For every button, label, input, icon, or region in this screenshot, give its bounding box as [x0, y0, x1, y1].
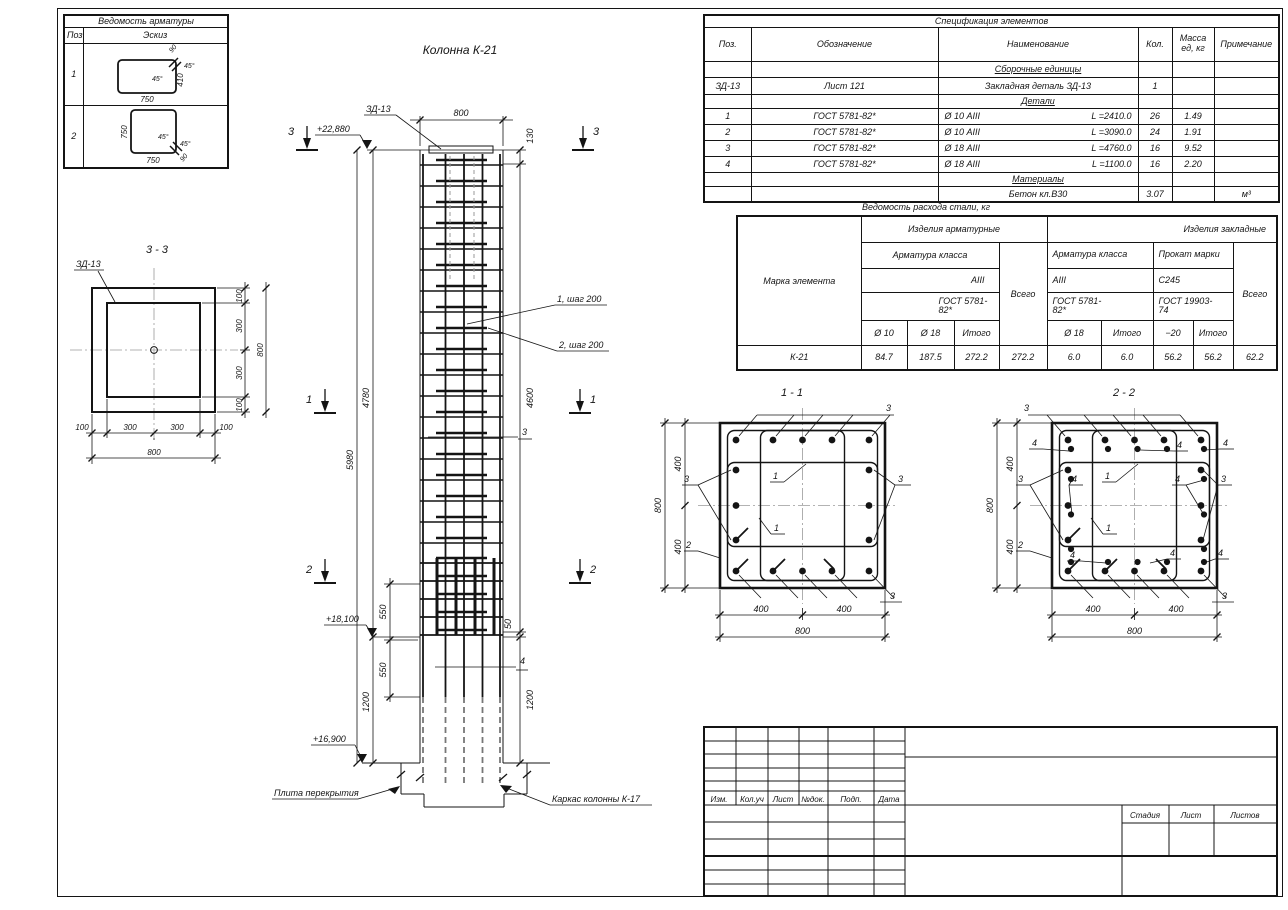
spec-cell: ЗД-13	[704, 77, 751, 94]
spec-cell: 2.20	[1172, 156, 1214, 172]
svg-text:2: 2	[589, 564, 596, 576]
steel-mark-header: Марка элемента	[737, 216, 861, 345]
col-koluch: Кол.уч	[740, 795, 764, 804]
spec-cell: Бетон кл.В30	[938, 186, 1138, 202]
zd13-label: ЗД-13	[364, 104, 441, 149]
col-izm: Изм.	[710, 795, 727, 804]
svg-text:400: 400	[1085, 604, 1100, 614]
title-block: Изм. Кол.уч Лист №док. Подп. Дата Стадия…	[703, 726, 1279, 898]
svg-text:1200: 1200	[361, 692, 371, 712]
sketch-dim-width: 750	[140, 95, 154, 103]
steel-value: 272.2	[999, 345, 1047, 370]
label-1-lower: 1	[1091, 518, 1117, 534]
label-3-left: 3	[1016, 470, 1063, 540]
svg-text:ЗД-13: ЗД-13	[366, 104, 391, 114]
tie-sketch-2: 750 750 45° 45° 90	[84, 106, 227, 165]
label-3-left: 3	[682, 470, 731, 540]
rebar-list-table: Ведомость арматуры Поз. Эскиз 1 750 410 …	[63, 14, 229, 169]
spec-header-designation: Обозначение	[751, 27, 938, 61]
svg-text:5980: 5980	[345, 450, 355, 470]
svg-text:3: 3	[1018, 474, 1023, 484]
tie-sketch-1: 750 410 45° 45° 90	[84, 44, 227, 103]
section-title: 3 - 3	[146, 244, 169, 256]
dim-right-chain: 130 4600 50 1200	[503, 128, 535, 766]
spec-cell: 26	[1138, 108, 1172, 124]
spec-cell: 1.91	[1172, 124, 1214, 140]
svg-text:550: 550	[378, 604, 388, 619]
svg-text:3: 3	[1024, 403, 1029, 413]
spec-cell: Ø 18 АIIIL =4760.0	[938, 140, 1138, 156]
svg-text:800: 800	[256, 343, 265, 357]
svg-text:1: 1	[774, 523, 779, 533]
pos4-leader: 4	[435, 656, 528, 670]
label-2: 2	[684, 540, 720, 558]
steel-group-embed: Изделия закладные	[1047, 216, 1277, 242]
sketch-angle: 45°	[152, 75, 163, 83]
dim-top-800: 800	[410, 108, 513, 146]
spec-length: L =3090.0	[1091, 127, 1131, 137]
steel-consumption-table: Марка элемента Изделия арматурные Издели…	[736, 215, 1278, 371]
section-flag-2-left: 2	[305, 559, 336, 583]
svg-text:3: 3	[1222, 591, 1227, 601]
steel-gost: ГОСТ 5781-82*	[1047, 292, 1153, 320]
svg-text:1200: 1200	[525, 690, 535, 710]
col-stadia: Стадия	[1130, 811, 1161, 820]
spec-cell: ГОСТ 5781-82*	[751, 108, 938, 124]
dim-left-4780-1200: 4780 1200	[361, 147, 377, 767]
steel-value: 56.2	[1193, 345, 1233, 370]
steel-roll-mark: Прокат марки	[1153, 242, 1233, 268]
spec-header-name: Наименование	[938, 27, 1138, 61]
spec-cell: 24	[1138, 124, 1172, 140]
col-ndok: №док.	[801, 795, 825, 804]
rebar-row-sketch: 750 750 45° 45° 90	[83, 105, 228, 168]
steel-col-header: Ø 18	[907, 320, 954, 345]
spec-cell: 16	[1138, 140, 1172, 156]
sketch-dim-height: 750	[120, 124, 129, 138]
svg-text:2: 2	[1017, 540, 1023, 550]
svg-text:400: 400	[836, 604, 851, 614]
svg-text:1: 1	[1106, 523, 1111, 533]
steel-value: 62.2	[1233, 345, 1277, 370]
spec-bar: Ø 18 АIII	[945, 143, 981, 153]
steel-group-rebar: Изделия арматурные	[861, 216, 1047, 242]
spec-cell: 3	[704, 140, 751, 156]
zd13-label: ЗД-13	[74, 259, 115, 302]
svg-text:3: 3	[288, 126, 295, 138]
svg-text:800: 800	[985, 498, 995, 513]
dim-left-550: 550 550	[378, 578, 420, 702]
sketch-dim-height: 410	[176, 72, 185, 86]
svg-text:2: 2	[685, 540, 691, 550]
rebar-list-header-sketch: Эскиз	[83, 27, 228, 43]
rebar-list-header-pos: Поз.	[64, 27, 83, 43]
label-1-upper: 1	[770, 464, 806, 482]
svg-text:800: 800	[795, 626, 810, 636]
svg-text:4: 4	[1175, 474, 1180, 484]
steel-class-a3: АIII	[1047, 268, 1153, 292]
spec-cell: 2	[704, 124, 751, 140]
svg-text:3: 3	[593, 126, 600, 138]
label-1-lower: 1	[759, 518, 785, 534]
svg-text:800: 800	[147, 448, 161, 457]
spec-header-qty: Кол.	[1138, 27, 1172, 61]
spec-cell: 9.52	[1172, 140, 1214, 156]
spec-cell: 16	[1138, 156, 1172, 172]
svg-text:+16,900: +16,900	[313, 734, 346, 744]
spec-bar: Ø 18 АIII	[945, 159, 981, 169]
svg-text:800: 800	[453, 108, 468, 118]
steel-value: 56.2	[1153, 345, 1193, 370]
svg-text:100: 100	[235, 289, 244, 303]
svg-text:50: 50	[503, 619, 513, 629]
svg-text:550: 550	[378, 662, 388, 677]
column-elevation-drawing: Колонна К-21 800 ЗД-13 +22,880 +18,100	[260, 30, 670, 845]
steel-value: К-21	[737, 345, 861, 370]
steel-total1-header: Всего	[999, 242, 1047, 345]
sketch-hook-len: 90	[168, 44, 178, 54]
label-1-upper: 1	[1102, 464, 1138, 482]
spec-header-note: Примечание	[1214, 27, 1279, 61]
section-2-2-drawing: 2 - 2 3 4 4 4 3 4	[968, 382, 1288, 660]
col-podp: Подп.	[840, 795, 861, 804]
svg-text:800: 800	[653, 498, 663, 513]
sketch-dim-width: 750	[146, 156, 160, 165]
svg-text:800: 800	[1127, 626, 1142, 636]
stirrup-grid	[421, 160, 503, 635]
steel-embed-class: Арматура класса	[1047, 242, 1153, 268]
svg-text:4: 4	[1177, 440, 1182, 450]
svg-text:+18,100: +18,100	[326, 614, 359, 624]
svg-text:100: 100	[219, 423, 233, 432]
section-3-3-drawing: 3 - 3 ЗД-13 100 300 300 100 800	[58, 238, 290, 483]
spec-cell: м³	[1214, 186, 1279, 202]
section-1-1-drawing: 1 - 1 3 3 3 1 1	[640, 382, 970, 660]
svg-text:2: 2	[305, 564, 312, 576]
col-sheets: Листов	[1229, 811, 1259, 820]
section-flag-3-right: 3	[572, 126, 600, 150]
svg-text:4: 4	[1170, 548, 1175, 558]
spec-cell: Ø 10 АIIIL =2410.0	[938, 108, 1138, 124]
steel-col-header: Итого	[1101, 320, 1153, 345]
svg-text:4: 4	[1032, 438, 1037, 448]
label-4-left: 4	[1069, 474, 1083, 515]
dim-left-5980: 5980	[345, 147, 361, 767]
spec-group-details: Детали	[938, 94, 1138, 108]
spec-cell: 4	[704, 156, 751, 172]
steel-col-header: Итого	[954, 320, 999, 345]
steel-gost: ГОСТ 5781-82*	[861, 292, 999, 320]
section-title: 1 - 1	[781, 387, 803, 399]
svg-text:4780: 4780	[361, 388, 371, 408]
section-flag-2-right: 2	[569, 559, 596, 583]
spec-cell: 3.07	[1138, 186, 1172, 202]
spec-group-materials: Материалы	[938, 172, 1138, 186]
spec-bar: Ø 10 АIII	[945, 127, 981, 137]
svg-text:3: 3	[898, 474, 903, 484]
svg-text:1: 1	[773, 471, 778, 481]
spec-header-mass: Масса ед, кг	[1172, 27, 1214, 61]
svg-text:300: 300	[170, 423, 184, 432]
specification-table: Спецификация элементов Поз. Обозначение …	[703, 14, 1280, 203]
svg-text:+22,880: +22,880	[317, 124, 350, 134]
steel-c245: С245	[1153, 268, 1233, 292]
steel-value: 272.2	[954, 345, 999, 370]
sketch-angle: 45°	[180, 140, 191, 148]
steel-value: 187.5	[907, 345, 954, 370]
svg-text:3: 3	[886, 403, 891, 413]
svg-text:400: 400	[1005, 456, 1015, 471]
drawing-sheet: { "rebar_list": { "title": "Ведомость ар…	[0, 0, 1288, 910]
elevation-mark-top: +22,880	[315, 124, 372, 149]
svg-text:4: 4	[1218, 548, 1223, 558]
elevation-mark-bottom: +16,900	[311, 734, 367, 763]
col-list: Лист	[772, 795, 794, 804]
spec-title: Спецификация элементов	[704, 15, 1279, 27]
svg-text:4: 4	[1072, 474, 1077, 484]
sketch-angle: 45°	[184, 62, 195, 70]
section-flag-1-left: 1	[306, 389, 336, 413]
spec-cell: ГОСТ 5781-82*	[751, 140, 938, 156]
spec-cell: Ø 10 АIIIL =3090.0	[938, 124, 1138, 140]
svg-text:130: 130	[525, 128, 535, 143]
spec-cell: 1	[1138, 77, 1172, 94]
svg-text:400: 400	[673, 539, 683, 554]
spec-group-assembly: Сборочные единицы	[938, 61, 1138, 77]
svg-text:Каркас колонны К-17: Каркас колонны К-17	[552, 794, 641, 804]
steel-value: 84.7	[861, 345, 907, 370]
svg-text:300: 300	[235, 319, 244, 333]
steel-rebar-class: Арматура класса	[861, 242, 999, 268]
svg-text:400: 400	[673, 456, 683, 471]
section-flag-3-left: 3	[288, 126, 318, 150]
label-2: 2	[1016, 540, 1052, 558]
svg-text:1: 1	[590, 394, 596, 406]
column-frame-label: Каркас колонны К-17	[500, 785, 652, 805]
rebar-row-pos: 2	[64, 105, 83, 168]
rebar-row-pos: 1	[64, 43, 83, 105]
svg-text:4600: 4600	[525, 388, 535, 408]
steel-value: 6.0	[1047, 345, 1101, 370]
svg-text:1, шаг 200: 1, шаг 200	[557, 294, 601, 304]
spec-length: L =1100.0	[1092, 159, 1131, 169]
spec-bar: Ø 10 АIII	[945, 111, 981, 121]
svg-text:ЗД-13: ЗД-13	[76, 259, 101, 269]
svg-text:400: 400	[753, 604, 768, 614]
slab-profile	[362, 763, 550, 807]
spec-cell: Закладная деталь ЗД-13	[938, 77, 1138, 94]
spec-length: L =4760.0	[1091, 143, 1131, 153]
svg-text:3: 3	[522, 427, 527, 437]
slab-label: Плита перекрытия	[272, 786, 400, 799]
section-title: 2 - 2	[1112, 387, 1135, 399]
steel-col-header: Ø 18	[1047, 320, 1101, 345]
svg-text:100: 100	[235, 398, 244, 412]
steel-col-header: −20	[1153, 320, 1193, 345]
rebar-row-sketch: 750 410 45° 45° 90	[83, 43, 228, 105]
section-flag-1-right: 1	[569, 389, 596, 413]
sketch-hook-len: 90	[179, 152, 189, 163]
svg-text:400: 400	[1005, 539, 1015, 554]
spec-cell: ГОСТ 5781-82*	[751, 124, 938, 140]
sketch-angle: 45°	[158, 133, 169, 141]
spec-length: L =2410.0	[1091, 111, 1131, 121]
steel-class-a3: АIII	[861, 268, 999, 292]
title-block-headers: Изм. Кол.уч Лист №док. Подп. Дата Стадия…	[710, 795, 1259, 820]
col-sheet: Лист	[1180, 811, 1202, 820]
steel-gost: ГОСТ 19903-74	[1153, 292, 1233, 320]
rebar-list-title: Ведомость арматуры	[64, 15, 228, 27]
drawing-title: Колонна К-21	[423, 43, 498, 57]
steel-col-header: Ø 10	[861, 320, 907, 345]
tie-step-label-2: 2, шаг 200	[488, 328, 609, 351]
steel-total2-header: Всего	[1233, 242, 1277, 345]
svg-text:4: 4	[1070, 550, 1075, 560]
label-3-right: 3	[874, 470, 911, 540]
spec-header-pos: Поз.	[704, 27, 751, 61]
svg-text:100: 100	[75, 423, 89, 432]
col-date: Дата	[877, 795, 900, 804]
steel-table-title: Ведомость расхода стали, кг	[736, 202, 1116, 212]
svg-text:2, шаг 200: 2, шаг 200	[558, 340, 603, 350]
steel-value: 6.0	[1101, 345, 1153, 370]
svg-text:300: 300	[123, 423, 137, 432]
tie-step-label-1: 1, шаг 200	[467, 294, 607, 324]
spec-cell: 1	[704, 108, 751, 124]
svg-text:4: 4	[520, 656, 525, 666]
svg-text:Плита перекрытия: Плита перекрытия	[274, 788, 359, 798]
svg-text:3: 3	[1221, 474, 1226, 484]
elevation-mark-mid: +18,100	[324, 614, 420, 637]
svg-text:300: 300	[235, 366, 244, 380]
spec-cell: Лист 121	[751, 77, 938, 94]
spec-cell: Ø 18 АIIIL =1100.0	[938, 156, 1138, 172]
svg-text:4: 4	[1223, 438, 1228, 448]
spec-cell: ГОСТ 5781-82*	[751, 156, 938, 172]
svg-text:400: 400	[1168, 604, 1183, 614]
steel-col-header: Итого	[1193, 320, 1233, 345]
svg-text:1: 1	[1105, 471, 1110, 481]
section-33-geometry	[70, 268, 238, 438]
spec-cell: 1.49	[1172, 108, 1214, 124]
svg-text:3: 3	[890, 591, 895, 601]
svg-text:1: 1	[306, 394, 312, 406]
